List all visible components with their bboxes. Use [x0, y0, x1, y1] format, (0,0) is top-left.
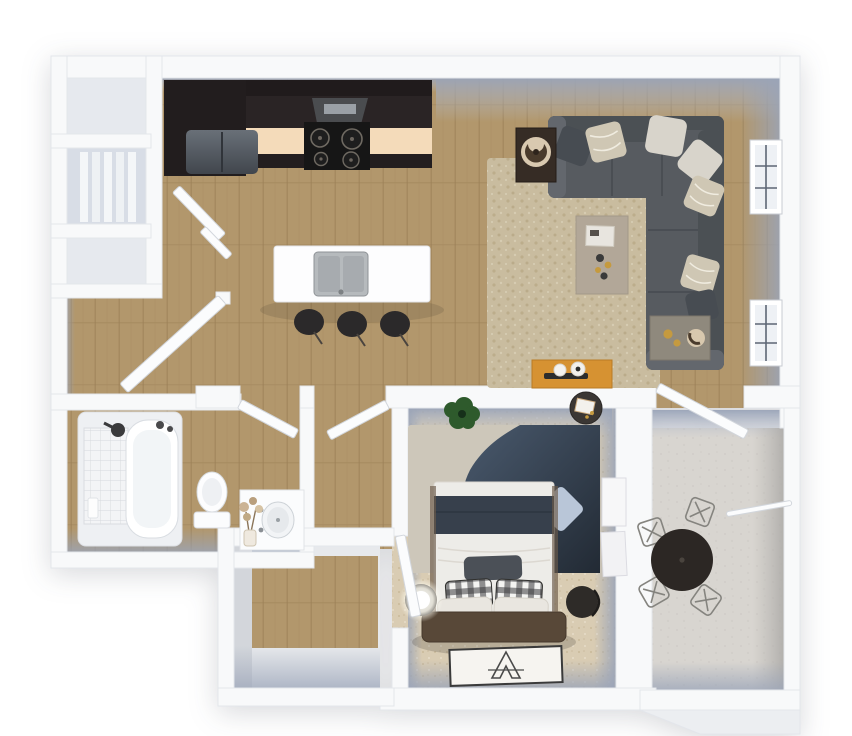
toilet-tank — [194, 512, 230, 528]
bed-rail-right — [552, 486, 558, 612]
closet-cell-3-floor — [67, 238, 146, 284]
table-candle — [595, 267, 601, 273]
hood-vent — [324, 104, 356, 114]
end-table-decor — [673, 339, 680, 346]
tray-item — [590, 230, 599, 236]
bar-stool — [380, 311, 410, 337]
eiffel-floor-art — [449, 646, 562, 686]
closet-right-wall — [146, 56, 162, 298]
bathroom-bottom-wall — [51, 552, 314, 568]
table-decor — [596, 254, 604, 262]
sink-basin-right — [343, 256, 364, 292]
lamp-side-table — [516, 128, 556, 182]
closet-separator-2 — [51, 224, 151, 238]
shelf-bar — [80, 152, 88, 222]
tub-control — [167, 426, 173, 432]
fridge-door-seam — [221, 132, 223, 172]
balcony-bottom-wall-face — [652, 662, 788, 692]
shampoo-bottle — [88, 498, 98, 518]
bar-stool — [337, 311, 367, 337]
living-top-wall-face — [436, 78, 782, 122]
dark-side-table — [566, 586, 599, 618]
navy-blanket — [434, 496, 554, 534]
living-bottom-wall-right — [744, 386, 800, 408]
sink-basin-left — [318, 256, 340, 292]
left-wall — [51, 56, 67, 568]
balcony-bottom-wall — [640, 690, 800, 710]
bedroom-top-wall — [386, 386, 656, 408]
sink-faucet — [338, 289, 343, 294]
top-wall — [51, 56, 800, 78]
console-table — [532, 360, 612, 388]
bar-stool — [294, 309, 324, 335]
table-umbrella-hole — [679, 557, 684, 562]
white-vase — [554, 364, 566, 376]
wall-panel — [602, 478, 626, 526]
burner-cap — [350, 137, 354, 141]
bed — [412, 482, 576, 656]
plant-pot — [458, 410, 466, 418]
headboard — [422, 612, 566, 642]
vanity — [239, 490, 304, 550]
flower-bloom — [249, 497, 257, 505]
shelf-bar — [128, 152, 136, 222]
end-table — [650, 316, 710, 360]
bedroom-bottom-wall — [380, 688, 656, 710]
faucet-handle — [259, 528, 264, 533]
pillow-light — [644, 114, 688, 158]
closet-separator-1 — [51, 134, 151, 148]
entry-wood-floor — [65, 296, 215, 408]
flower-bloom — [243, 513, 251, 521]
divider-wall-a — [196, 386, 240, 408]
table-tray — [586, 226, 615, 247]
flower-vase — [244, 530, 256, 546]
shower-head — [111, 423, 125, 437]
right-wall — [780, 56, 800, 428]
divider-wall-b — [300, 386, 314, 408]
burner-cap — [319, 157, 322, 160]
bathtub-basin — [133, 430, 171, 528]
vase-opening — [576, 367, 581, 372]
floorplan-render — [0, 0, 852, 736]
burner-cap — [349, 158, 353, 162]
table-candle — [605, 262, 612, 269]
closet-bottom-face — [234, 646, 380, 692]
accent-decor — [585, 415, 589, 419]
burner-cap — [318, 136, 322, 140]
wall-panel — [601, 531, 627, 576]
gray-lumbar-pillow — [464, 555, 523, 581]
lamp-finial — [533, 149, 539, 155]
shelf-bar — [92, 152, 100, 222]
closet-bottom-wall-outer — [218, 688, 394, 706]
closet-bottom-wall — [51, 284, 162, 298]
balcony-right-wall — [784, 408, 800, 710]
tub-control — [156, 421, 164, 429]
flower-bloom — [255, 505, 263, 513]
walkin-closet-wood — [252, 556, 378, 648]
sink-drain — [276, 518, 280, 522]
window-2 — [750, 300, 782, 366]
closet-left-wall — [218, 528, 234, 706]
flower-bloom — [239, 502, 249, 512]
shelf-bar — [104, 152, 112, 222]
shelf-bar — [116, 152, 124, 222]
toilet — [194, 472, 230, 528]
accent-table — [570, 392, 602, 424]
table-decor — [600, 272, 607, 279]
end-table-decor — [663, 329, 672, 338]
closet-cell-1-floor — [67, 72, 146, 134]
window-1 — [750, 140, 782, 214]
coffee-table — [576, 216, 628, 294]
floorplan-stage — [0, 0, 852, 736]
toilet-seat — [202, 478, 222, 506]
accent-decor — [590, 411, 594, 415]
balcony-right-wall-face — [752, 428, 788, 694]
bedroom-left-wall-upper — [392, 408, 408, 536]
